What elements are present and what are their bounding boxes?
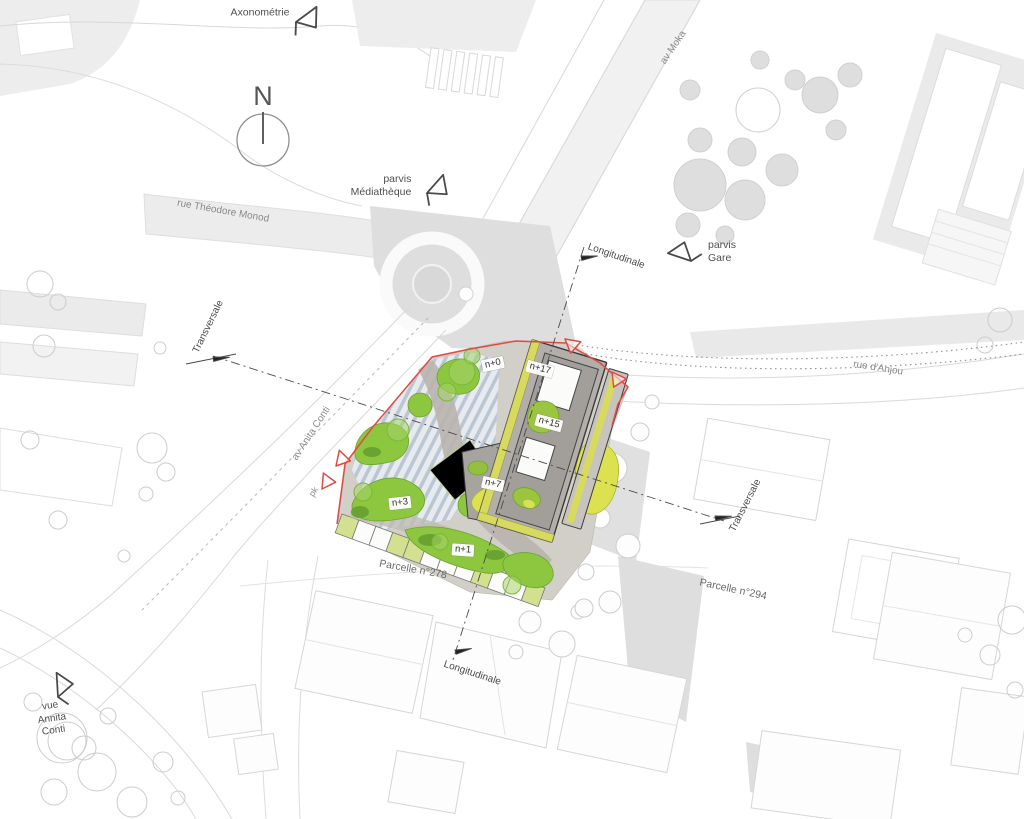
camera-icon-parvis-gare [668,237,702,269]
site-plan: N Axonométrie parvis Médiathèque parvis … [0,0,1024,819]
site-plan-canvas [0,0,1024,819]
camera-icon-axonometrie [289,7,323,36]
section-flag-icon [212,352,230,366]
camera-icon-parvis-mediatheque [419,175,453,206]
context-buildings-ne [871,33,1024,285]
context-trees-ne [674,51,862,244]
view-label-vue-annita-conti: vue Annita Conti [35,698,68,739]
compass-north-label: N [253,80,273,114]
level-label-n1: n+1 [452,543,475,556]
view-label-axonometrie: Axonométrie [231,6,290,19]
north-compass-icon [237,112,289,166]
view-label-parvis-mediatheque: parvis Médiathèque [351,173,412,199]
level-label-n3: n+3 [388,496,411,510]
view-label-parvis-gare: parvis Gare [708,239,736,265]
